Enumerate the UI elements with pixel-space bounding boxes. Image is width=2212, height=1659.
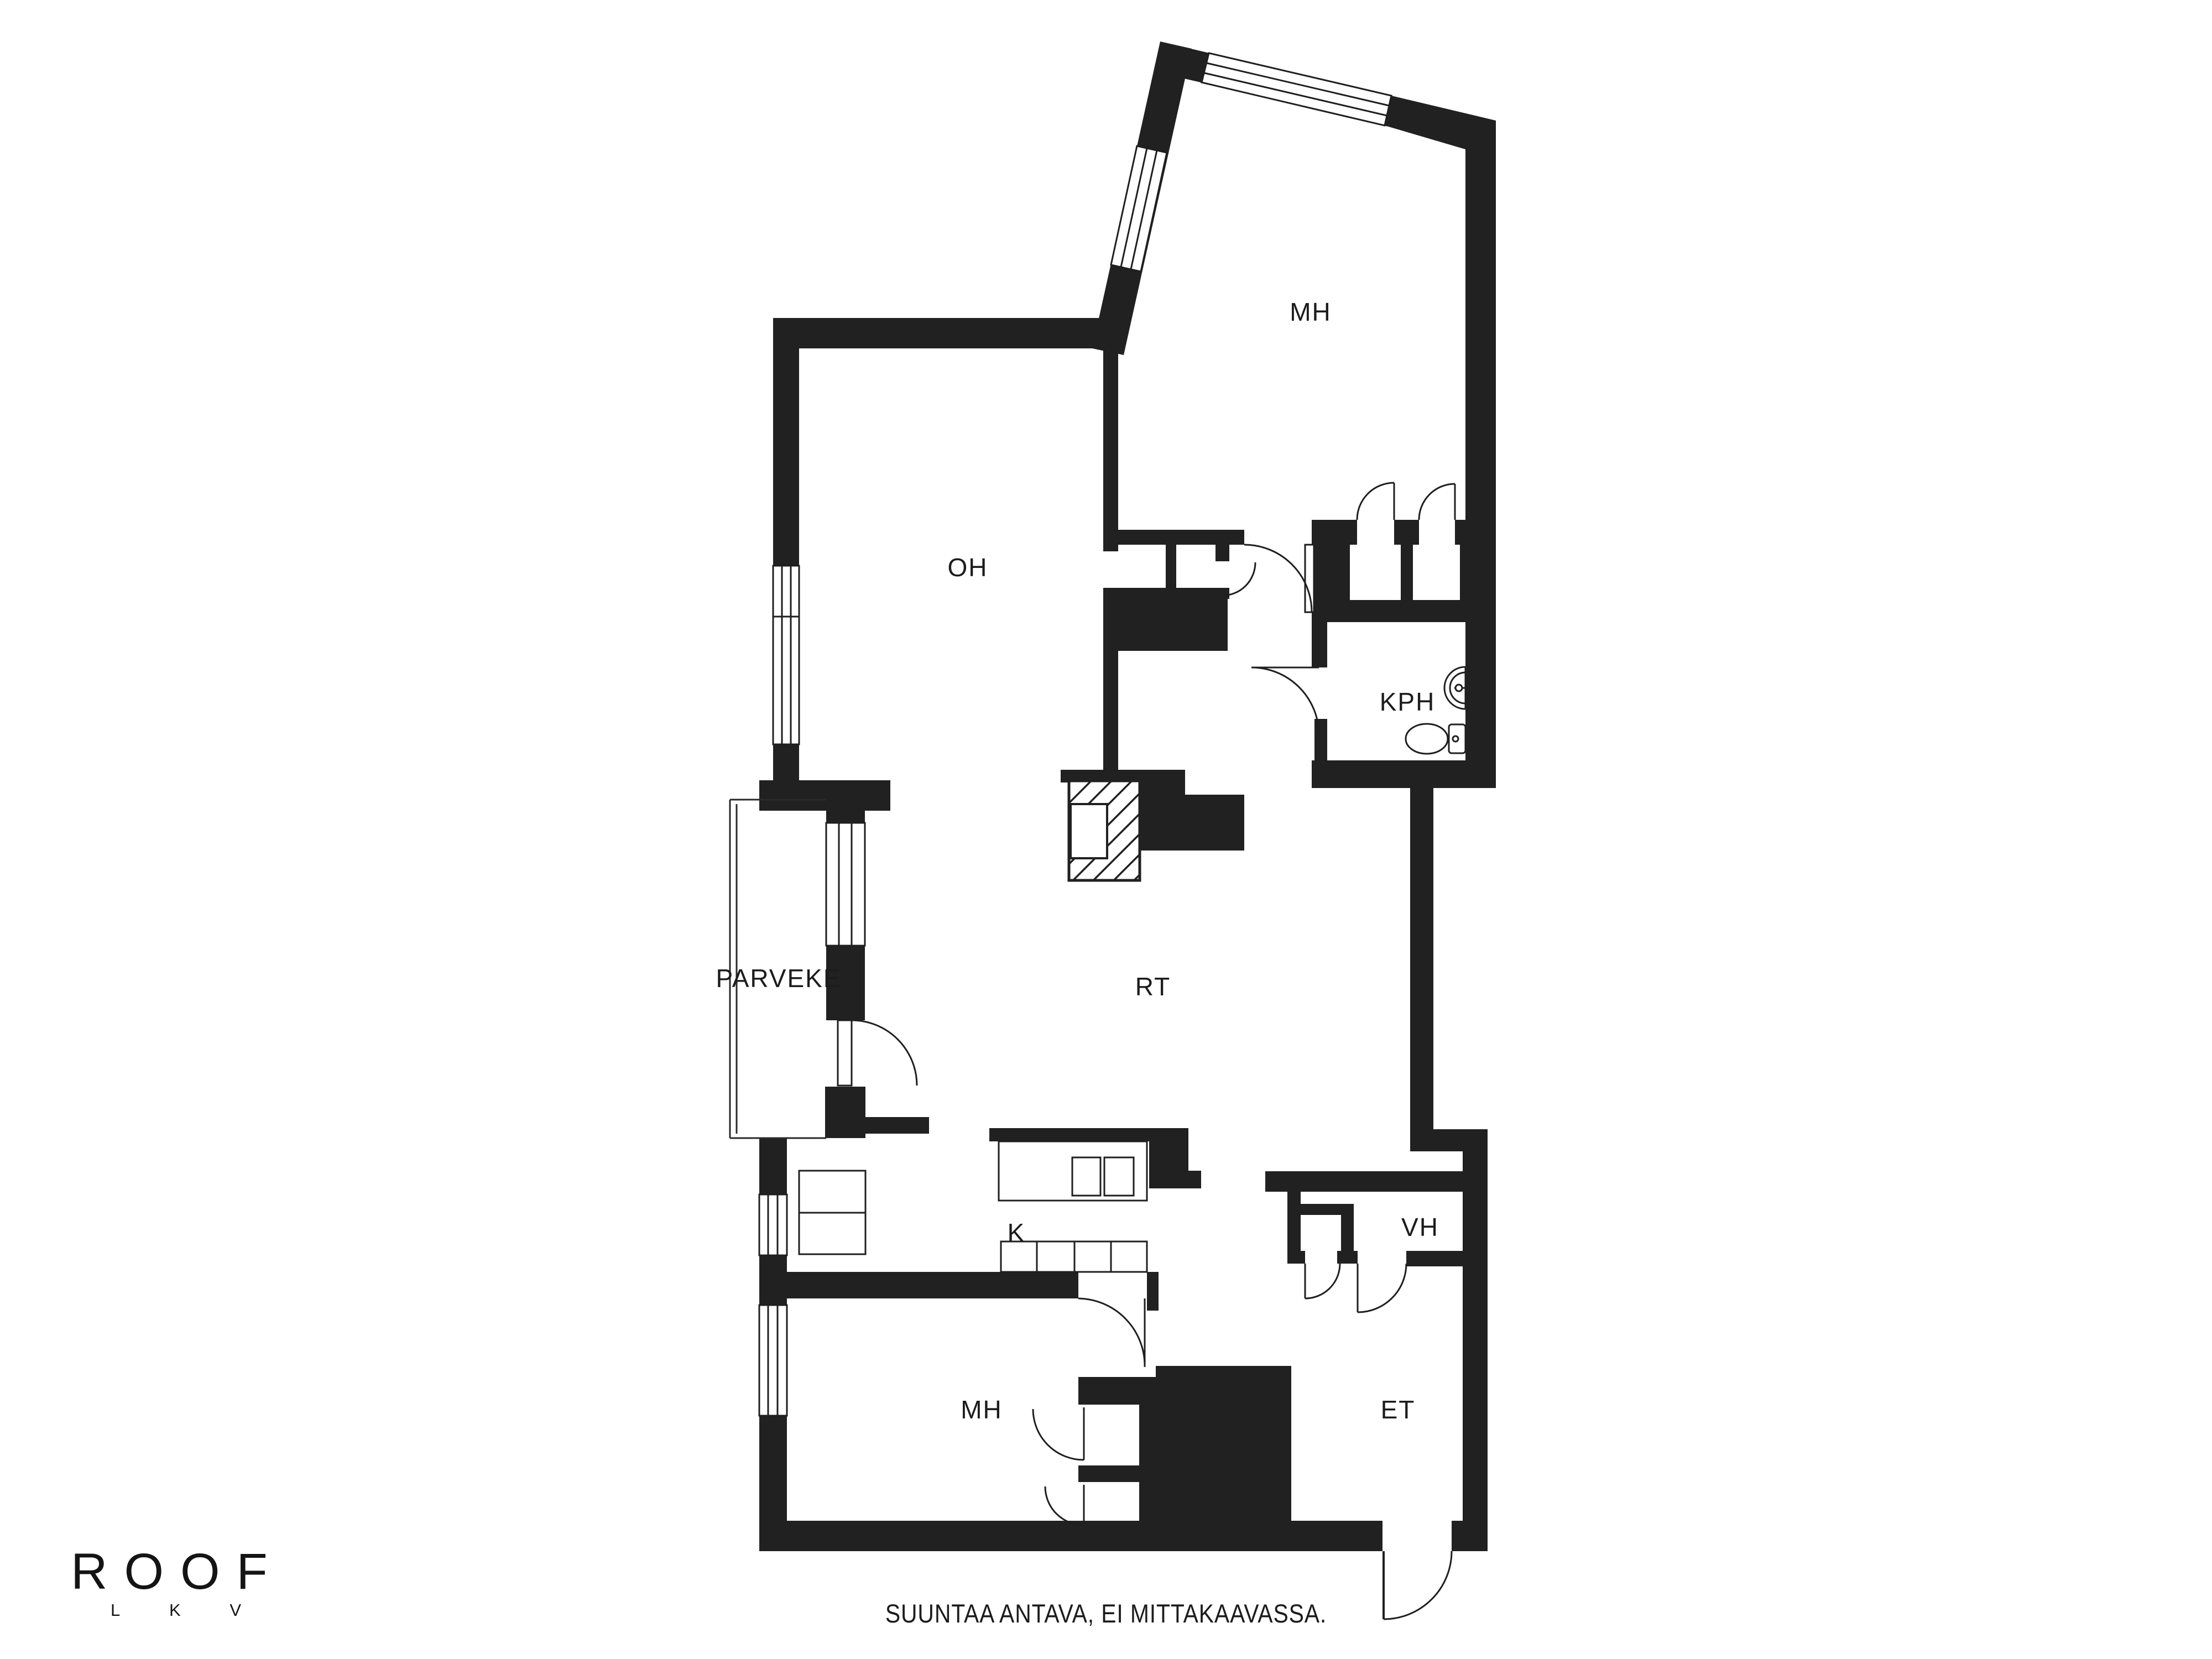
- window-balcony-wall: [826, 823, 865, 946]
- logo-sub-letter-v: V: [229, 1600, 242, 1620]
- label-bathroom: KPH: [1380, 687, 1436, 716]
- label-bedroom2: MH: [961, 1395, 1003, 1424]
- disclaimer-text: SUUNTAA ANTAVA, EI MITTAKAAVASSA.: [885, 1598, 1327, 1629]
- logo-sub-letter-k: K: [169, 1600, 182, 1620]
- walkin-closet-niche-door: [1305, 1264, 1340, 1298]
- window-livingroom: [773, 566, 799, 744]
- toilet-icon: [1406, 724, 1465, 754]
- label-balcony: PARVEKE: [716, 964, 841, 993]
- roof-lkv-logo: ROOF L K V: [71, 1546, 284, 1620]
- label-kitchen: K: [1008, 1218, 1026, 1247]
- window-kitchen: [759, 1194, 787, 1255]
- bedroom1-closet-door-a: [1357, 483, 1394, 520]
- bedroom1-door: [1244, 545, 1314, 612]
- sink-icon: [1444, 667, 1465, 709]
- floor-plan-page: MH OH KPH PARVEKE RT K VH MH ET ROOF L K…: [0, 0, 2212, 1659]
- entry-door: [1384, 1551, 1452, 1619]
- bathroom-door: [1251, 667, 1319, 735]
- label-entrance: ET: [1381, 1395, 1416, 1424]
- logo-sub-letter-l: L: [111, 1600, 121, 1620]
- bedroom2-closet-door-b: [1045, 1485, 1084, 1525]
- bedroom1-closet-door-b: [1419, 484, 1455, 520]
- balcony-door: [838, 1020, 917, 1086]
- kitchen-island-counter: [999, 1141, 1147, 1201]
- bedroom2-closet-door-a: [1033, 1407, 1084, 1460]
- window-bedroom2: [759, 1305, 787, 1416]
- wall-counter: [799, 1171, 865, 1254]
- label-walkin-closet: VH: [1401, 1213, 1439, 1241]
- window-top-wall: [1202, 53, 1391, 126]
- logo-sub-letters: L K V: [111, 1600, 242, 1620]
- floor-plan-drawing: MH OH KPH PARVEKE RT K VH MH ET: [0, 0, 2212, 1659]
- label-diningroom: RT: [1135, 972, 1171, 1001]
- window-slant-wall: [1111, 146, 1167, 272]
- label-bedroom1: MH: [1290, 298, 1332, 326]
- label-livingroom: OH: [948, 553, 988, 582]
- bedroom2-door: [1078, 1298, 1145, 1367]
- fireplace-flue: [1069, 781, 1140, 880]
- logo-brand-text: ROOF: [71, 1546, 284, 1597]
- walkin-closet-door: [1358, 1264, 1406, 1312]
